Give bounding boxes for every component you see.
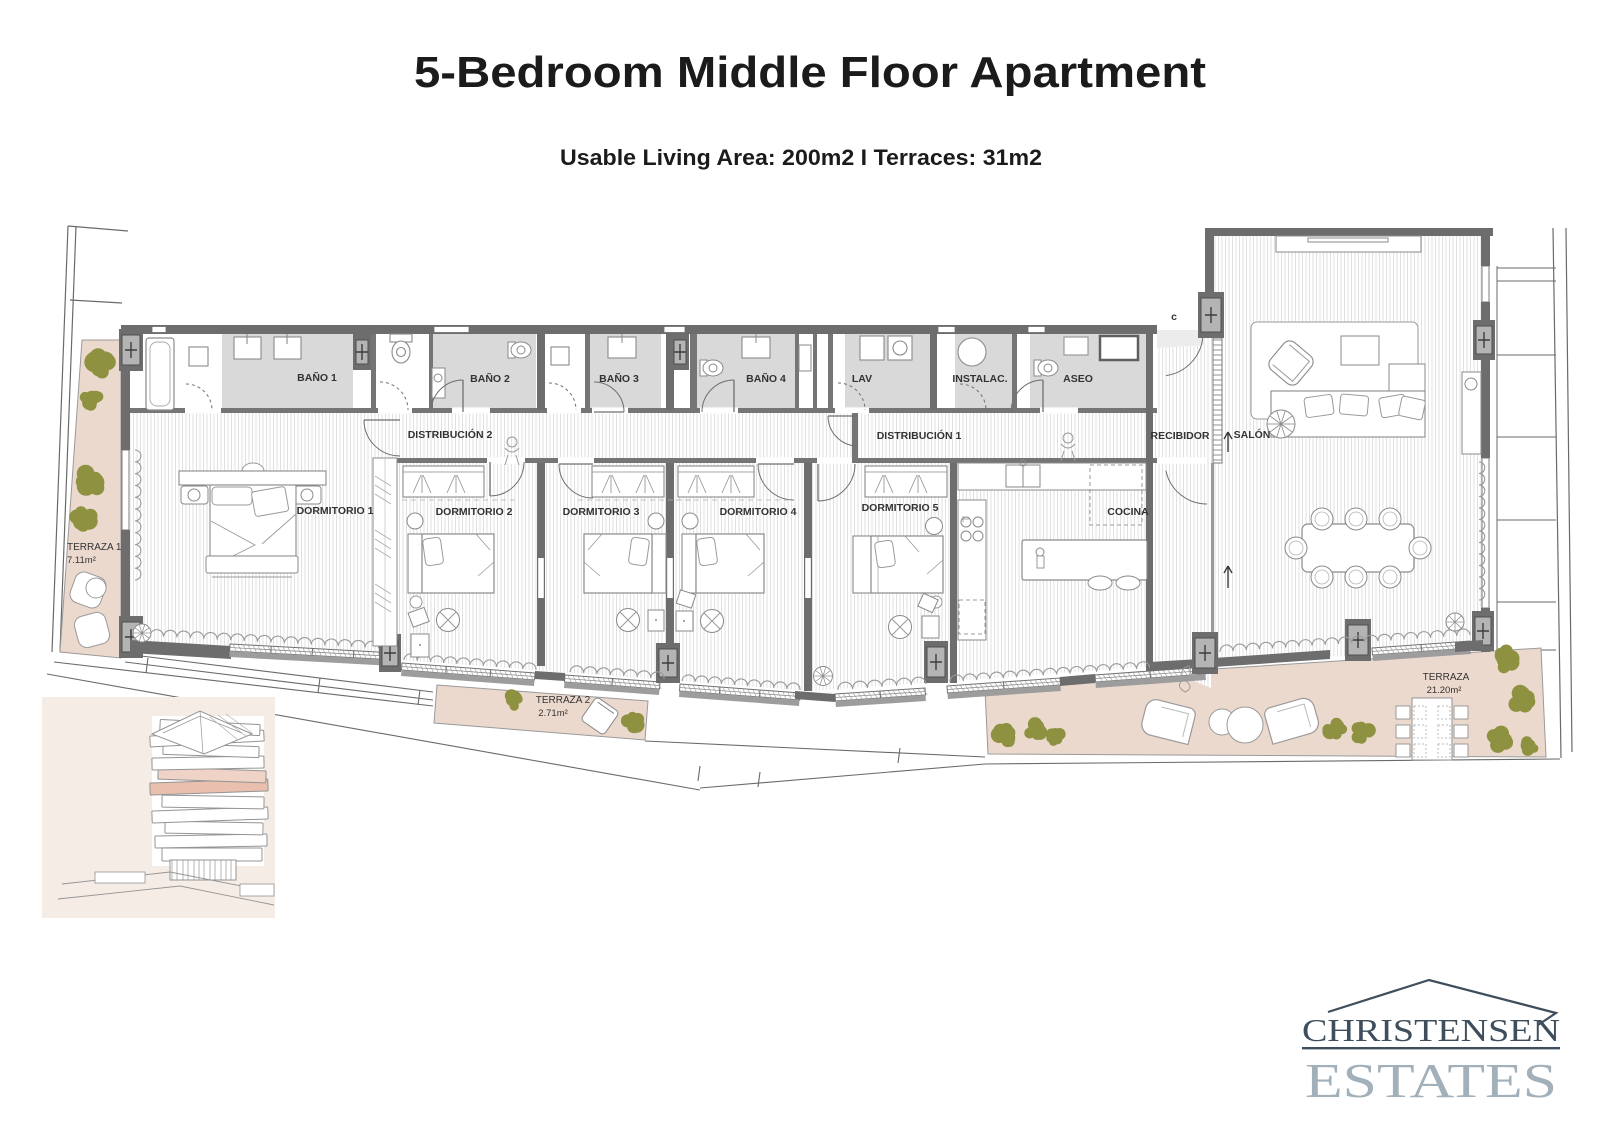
svg-text:TERRAZA: TERRAZA [1423,672,1470,683]
svg-text:BAÑO 3: BAÑO 3 [599,372,639,385]
svg-text:COCINA: COCINA [1107,506,1149,518]
svg-text:DORMITORIO 2: DORMITORIO 2 [436,506,513,518]
svg-text:BAÑO 2: BAÑO 2 [470,372,510,385]
svg-text:LAV: LAV [852,373,872,385]
svg-text:DISTRIBUCIÓN 2: DISTRIBUCIÓN 2 [408,428,493,441]
svg-text:DORMITORIO 5: DORMITORIO 5 [862,502,939,514]
svg-text:ESTATES: ESTATES [1305,1053,1557,1108]
svg-text:7.11m²: 7.11m² [67,555,96,566]
svg-text:SALÓN: SALÓN [1234,428,1271,441]
svg-text:ASEO: ASEO [1063,373,1093,385]
svg-text:DORMITORIO 1: DORMITORIO 1 [297,505,374,517]
svg-text:2.71m²: 2.71m² [538,708,568,719]
svg-text:BAÑO 1: BAÑO 1 [297,371,337,384]
svg-text:DISTRIBUCIÓN 1: DISTRIBUCIÓN 1 [877,429,962,442]
svg-text:TERRAZA 2: TERRAZA 2 [536,695,591,706]
svg-text:DORMITORIO 4: DORMITORIO 4 [720,506,797,518]
svg-text:Usable Living Area: 200m2 I Te: Usable Living Area: 200m2 I Terraces: 31… [560,145,1042,170]
svg-text:5-Bedroom Middle Floor Apartme: 5-Bedroom Middle Floor Apartment [414,49,1206,97]
svg-text:CHRISTENSEN: CHRISTENSEN [1302,1012,1560,1048]
svg-text:INSTALAC.: INSTALAC. [952,373,1007,385]
svg-text:21.20m²: 21.20m² [1427,685,1462,696]
svg-text:DORMITORIO 3: DORMITORIO 3 [563,506,640,518]
svg-text:RECIBIDOR: RECIBIDOR [1151,430,1210,442]
svg-text:BAÑO 4: BAÑO 4 [746,372,786,385]
svg-text:TERRAZA 1: TERRAZA 1 [67,542,122,553]
svg-text:c: c [1171,311,1177,323]
